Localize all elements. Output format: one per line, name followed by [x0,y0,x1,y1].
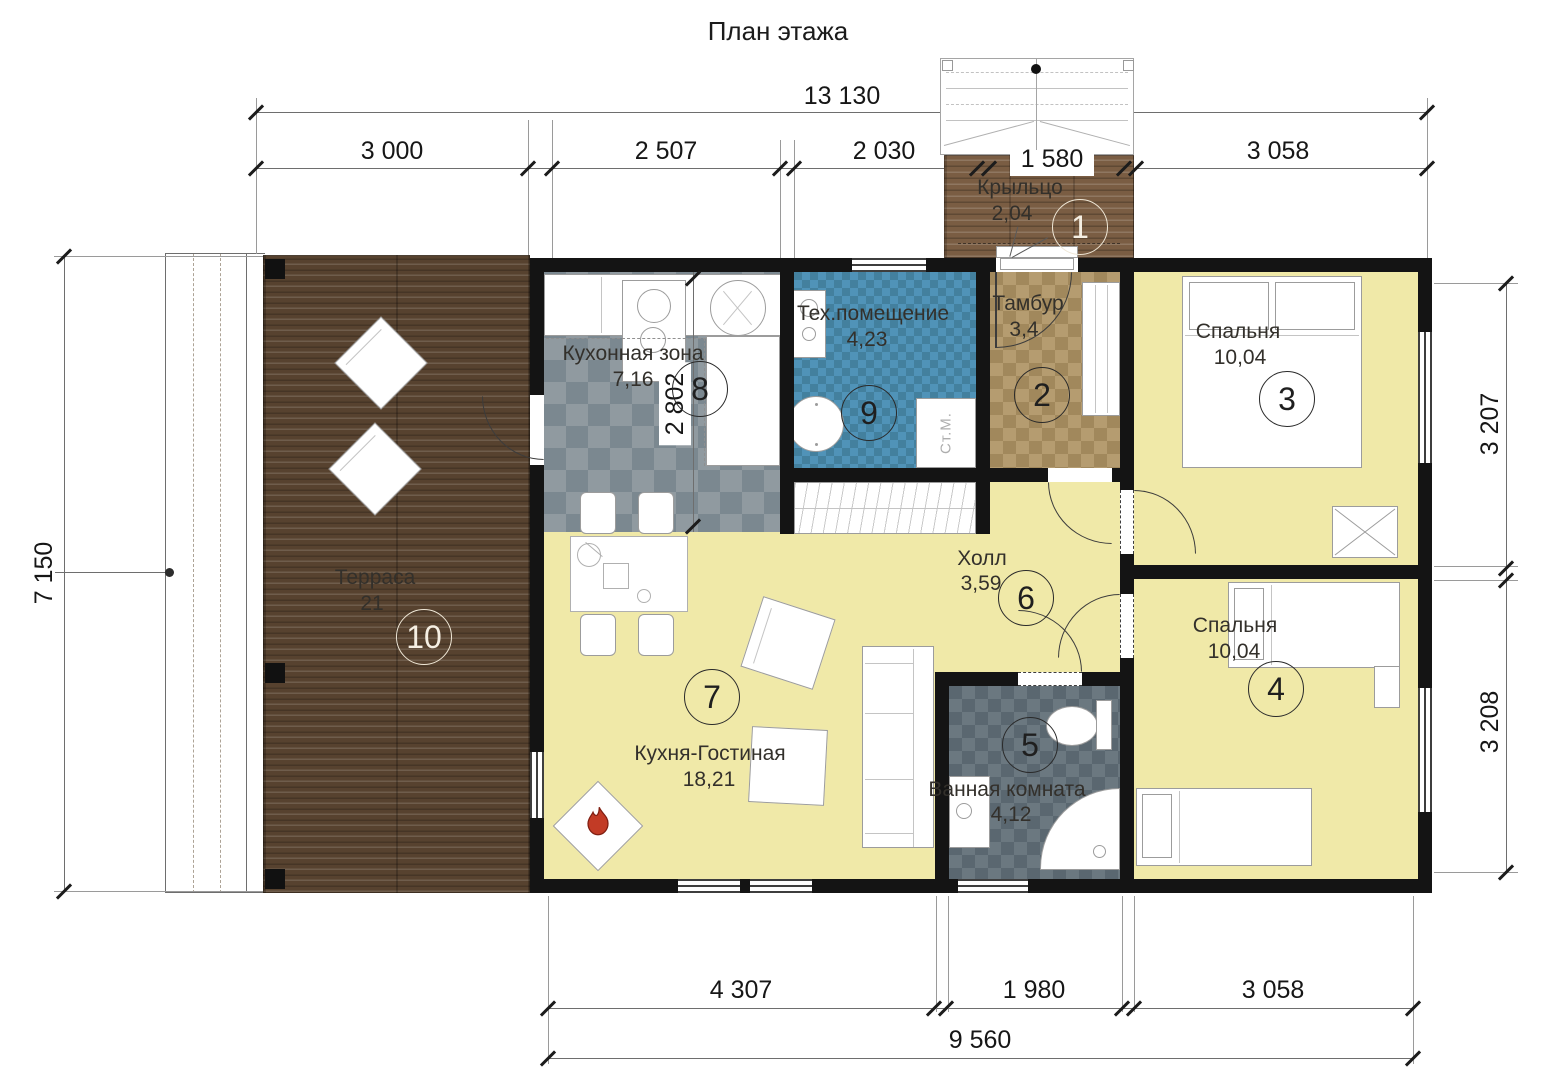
door-opening-bathroom [1018,672,1082,686]
room-label-terrace: Терраса [335,566,416,589]
dim-top-seg-5: 3 058 [1247,138,1310,164]
room-number-tambur: 2 [1014,367,1070,423]
dim-right-top: 3 207 [1477,393,1503,456]
room-area-bedroom1: 10,04 [1214,346,1267,369]
washing-machine: Ст.М. [916,398,976,468]
extension-line [948,896,949,1012]
room-area-tech: 4,23 [847,328,888,351]
room-label-tech: Тех.помещение [797,302,949,325]
window-bedroom2 [1418,688,1432,812]
dining-table [570,536,688,612]
washing-machine-label: Ст.М. [938,412,955,454]
shower-drain [1093,845,1106,858]
dining-chair [638,492,674,534]
canopy-line [946,120,1128,121]
wall [794,468,976,482]
extension-line [1413,896,1414,1064]
kitchen-sink [710,280,766,336]
wall [976,272,990,534]
wall [935,672,1018,686]
roof-edge-line [165,892,265,893]
wall [990,468,1048,482]
room-label-porch: Крыльцо [977,176,1063,199]
bedroom-nightstand [1374,666,1400,708]
tambur-wardrobe [1082,282,1120,416]
dim-bottom-total: 9 560 [949,1027,1012,1053]
dim-line-bottom-total [548,1058,1413,1059]
room-label-kitchen: Кухонная зона [562,342,703,365]
extension-line [552,120,553,258]
extension-line [54,256,264,257]
canopy-line [946,88,1128,89]
wall [1120,658,1134,879]
table-cup [637,589,651,603]
room-area-tambur: 3,4 [1009,318,1038,341]
room-area-hall: 3,59 [961,572,1002,595]
room-label-bathroom: Ванная комната [928,778,1085,801]
wall [1112,468,1120,482]
dim-line-left [64,256,65,891]
dim-left-total: 7 150 [31,542,57,605]
dim-bottom-seg-1: 4 307 [710,977,773,1003]
canopy-post [1123,60,1134,71]
door-opening-tambur [1048,468,1112,482]
dim-top-seg-3: 2 030 [853,138,916,164]
dim-line-top-total [256,112,1427,113]
counter-edge-dashed [546,338,706,339]
page-title: План этажа [708,16,849,47]
dim-bottom-seg-2: 1 980 [1003,977,1066,1003]
dim-top-seg-2: 2 507 [635,138,698,164]
hall-closet [794,482,976,534]
room-number-bedroom1: 3 [1259,371,1315,427]
extension-line [780,140,781,272]
room-area-porch: 2,04 [992,202,1033,225]
wall [1120,272,1134,490]
extension-line [1122,896,1123,1012]
extension-line [528,120,529,258]
tech-boiler [788,396,844,452]
canopy-post [942,60,953,71]
room-area-kitchen: 7,16 [613,368,654,391]
wall [1134,565,1418,579]
room-label-hall: Холл [957,547,1007,570]
porch-step [1000,258,1074,270]
room-area-terrace: 21 [360,592,383,615]
dim-top-seg-4: 1 580 [1021,146,1084,172]
bedroom-single-bed [1136,788,1312,866]
bedroom-side-table [1332,506,1398,558]
toilet-tank [1096,700,1112,750]
room-number-tech: 9 [841,385,897,441]
dining-chair [580,492,616,534]
coffee-table [748,726,828,806]
wall [1082,672,1120,686]
bedroom-double-bed [1182,276,1362,468]
wall [780,272,794,534]
dining-chair [638,614,674,656]
room-area-living: 18,21 [683,768,736,791]
room-label-tambur: Тамбур [992,292,1063,315]
room-number-porch: 1 [1052,199,1108,255]
pillow [1142,794,1172,858]
room-number-bathroom: 5 [1002,717,1058,773]
roof-edge-line [165,253,265,254]
extension-line [1427,98,1428,258]
dim-bottom-seg-3: 3 058 [1242,977,1305,1003]
window-bedroom1 [1418,332,1432,463]
table-plate [603,563,629,589]
dim-top-seg-1: 3 000 [361,138,424,164]
extension-line [548,896,549,1064]
dim-right-bottom: 3 208 [1477,691,1503,754]
terrace-column [265,663,285,683]
sofa [862,646,934,848]
room-label-bedroom2: Спальня [1193,614,1277,637]
pillow [1275,282,1355,330]
fireplace-flame-icon [583,806,613,842]
extension-line [794,140,795,272]
wall [1120,554,1134,594]
room-number-bedroom2: 4 [1248,661,1304,717]
canopy-dot [1031,64,1041,74]
dim-line-top-segments [256,168,1427,169]
window-tech [852,258,926,272]
extension-line [1134,896,1135,1012]
extension-line [256,98,257,254]
dim-line-bottom-segments [548,1008,1413,1009]
room-label-living: Кухня-Гостиная [634,742,785,765]
room-label-bedroom1: Спальня [1196,320,1280,343]
room-number-living: 7 [684,669,740,725]
window-bathroom [958,879,1028,893]
dim-top-total: 13 130 [804,83,880,109]
window-living-left [530,752,544,818]
roof-dash-line [193,253,194,893]
terrace-column [265,259,285,279]
extension-line [54,891,264,892]
door-opening-bedroom1 [1120,490,1134,554]
outer-wall-top [530,258,1432,272]
room-area-bathroom: 4,12 [991,803,1032,826]
window-mullion [740,879,750,893]
crossed-lines-icon [1333,507,1397,557]
door-opening-bedroom2 [1120,594,1134,658]
roof-dash-line [220,253,221,893]
room-area-bedroom2: 10,04 [1208,640,1261,663]
extension-line [936,896,937,1012]
roof-centerline [55,572,171,573]
roof-edge-line [246,253,247,893]
canopy-line [946,104,1128,105]
room-number-terrace: 10 [396,609,452,665]
room-number-hall: 6 [998,570,1054,626]
dining-chair [580,614,616,656]
centerline-dot [165,568,174,577]
terrace-column [265,869,285,889]
room-number-kitchen: 8 [672,361,728,417]
floor-plan: План этажа [0,0,1556,1080]
stove-burner [637,289,671,323]
